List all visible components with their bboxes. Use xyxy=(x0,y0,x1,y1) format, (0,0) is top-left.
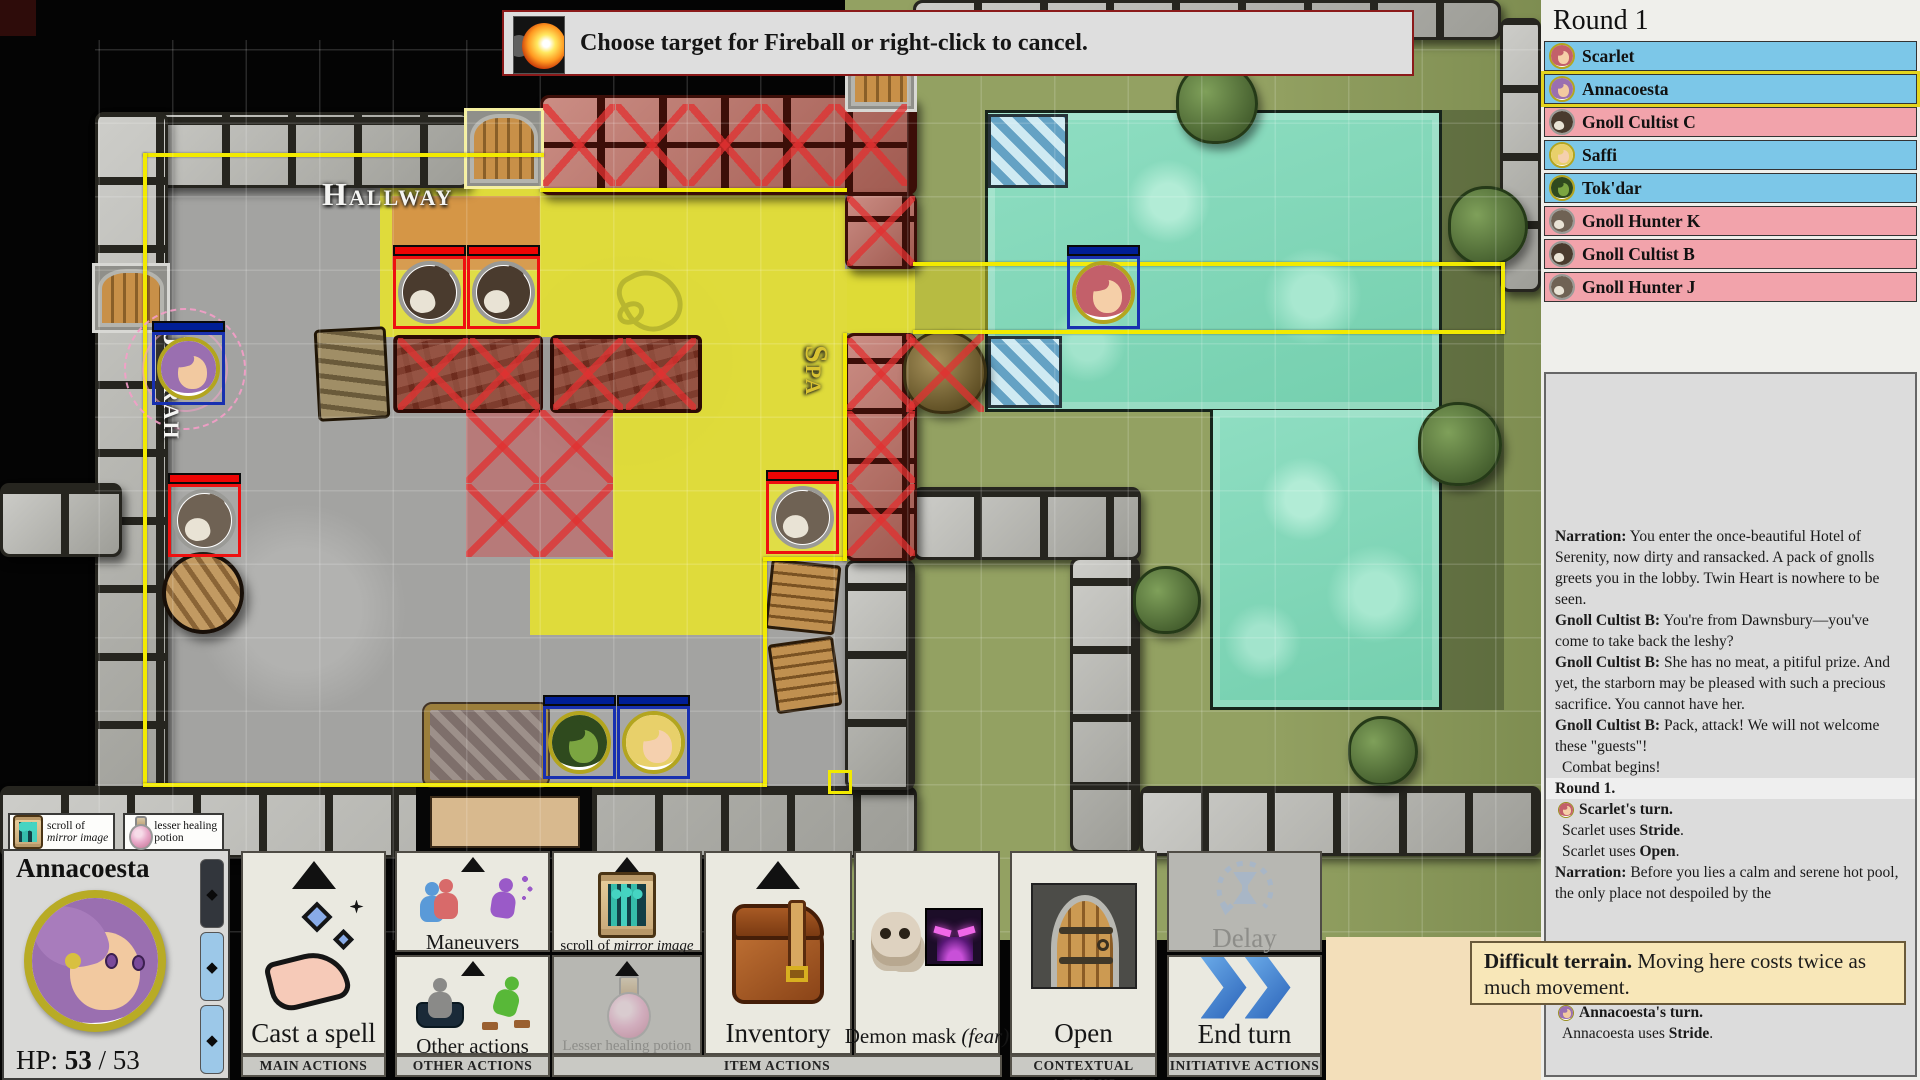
aoe-outline xyxy=(913,262,1505,266)
delay-button[interactable]: Delay xyxy=(1167,851,1322,952)
cast-a-spell-button[interactable]: Cast a spell xyxy=(241,851,386,1055)
spa-pool-lower xyxy=(1210,410,1442,710)
action-group: Cast a spellMAIN ACTIONS xyxy=(241,851,386,1077)
hp-bar xyxy=(152,321,225,332)
arrow-up-icon xyxy=(615,961,639,976)
broken-furniture xyxy=(550,335,702,413)
initiative-name: Gnoll Hunter K xyxy=(1582,211,1700,232)
initiative-name: Annacoesta xyxy=(1582,79,1669,100)
card-label: Delay xyxy=(1212,923,1276,954)
aoe-outline xyxy=(913,330,1505,334)
fallen-door-piece xyxy=(767,636,842,715)
backpack-icon xyxy=(732,904,824,1004)
banner-text: Choose target for Fireball or right-clic… xyxy=(580,30,1088,57)
token-gnoll-hunter-right[interactable] xyxy=(766,481,839,554)
arrow-up-icon xyxy=(756,861,800,889)
inventory-button[interactable]: Inventory xyxy=(704,851,852,1055)
quickslot-line: mirror image xyxy=(47,832,108,844)
card-label: Maneuvers xyxy=(426,930,519,955)
card-label: Open xyxy=(1054,1018,1112,1049)
hp-bar xyxy=(168,473,241,484)
log-entry: Gnoll Cultist B: Pack, attack! We will n… xyxy=(1555,715,1906,757)
sidebar: Round 1 ScarletAnnacoestaGnoll Cultist C… xyxy=(1541,0,1920,1080)
dry-bush xyxy=(903,330,987,414)
initiative-name: Gnoll Cultist C xyxy=(1582,112,1696,133)
token-gnoll-cultist-1[interactable] xyxy=(393,256,466,329)
potion-icon xyxy=(605,976,649,1038)
hp-bar xyxy=(543,695,616,706)
log-entry: Scarlet's turn. xyxy=(1555,799,1906,820)
target-square-cursor xyxy=(828,770,852,794)
round-title: Round 1 xyxy=(1553,5,1920,37)
aoe-outline xyxy=(143,153,147,787)
token-portrait xyxy=(548,711,611,774)
card-label: End turn xyxy=(1198,1019,1292,1050)
card-label: Cast a spell xyxy=(251,1018,375,1049)
hp-bar xyxy=(617,695,690,706)
token-tokdar[interactable] xyxy=(543,706,616,779)
map-corner-tile xyxy=(0,0,36,36)
initiative-name: Tok'dar xyxy=(1582,178,1642,199)
torn-rug xyxy=(424,704,548,786)
wooden-table xyxy=(162,552,244,634)
aoe-cell-group[interactable] xyxy=(845,269,915,333)
end-turn-button[interactable]: End turn xyxy=(1167,955,1322,1056)
group-footer: INITIATIVE ACTIONS xyxy=(1167,1055,1322,1077)
initiative-row-scarlet[interactable]: Scarlet xyxy=(1544,41,1917,71)
aoe-cell-group[interactable] xyxy=(530,559,763,635)
pool-steps xyxy=(988,114,1068,188)
demon-mask-button[interactable]: Demon mask (fear) xyxy=(854,851,1000,1055)
game-window: Hallway Spa Jarrah Choose target for Fir… xyxy=(0,0,1920,1080)
quickslot-scroll[interactable]: scroll of mirror image xyxy=(8,813,115,851)
group-footer: MAIN ACTIONS xyxy=(241,1055,386,1077)
garden-wall xyxy=(1140,786,1541,856)
log-entry: Scarlet uses Open. xyxy=(1555,841,1906,862)
log-entry: Scarlet uses Stride. xyxy=(1555,820,1906,841)
wall-in-blast xyxy=(845,193,917,269)
log-entry: Gnoll Cultist B: You're from Dawnsbury—y… xyxy=(1555,610,1906,652)
aoe-outline xyxy=(843,333,847,561)
hp-bar xyxy=(1067,245,1140,256)
bush xyxy=(1418,402,1502,486)
aoe-outline xyxy=(540,188,847,192)
quickslot-line: potion xyxy=(154,832,217,844)
token-portrait xyxy=(472,261,535,324)
arrow-up-icon xyxy=(461,857,485,872)
action-group: DelayEnd turnINITIATIVE ACTIONS xyxy=(1167,851,1322,1077)
hp-bar xyxy=(766,470,839,481)
portrait-icon xyxy=(1549,43,1575,69)
initiative-row-gnoll-cultist-c[interactable]: Gnoll Cultist C xyxy=(1544,107,1917,137)
other-actions-button[interactable]: Other actions xyxy=(395,955,550,1056)
log-entry: Combat begins! xyxy=(1555,757,1906,778)
action-group: scroll of mirror imageLesser healing pot… xyxy=(552,851,1002,1077)
hand-sparkles-icon xyxy=(262,898,366,1010)
door-mat xyxy=(430,796,580,848)
token-portrait xyxy=(771,486,834,549)
initiative-name: Gnoll Cultist B xyxy=(1582,244,1695,265)
action-group: ManeuversOther actionsOTHER ACTIONS xyxy=(395,851,550,1077)
grapple-figures-icon xyxy=(412,872,534,930)
quickslot-potion[interactable]: lesser healing potion xyxy=(123,813,224,851)
door-icon xyxy=(1031,883,1137,989)
token-gnoll-cultist-2[interactable] xyxy=(467,256,540,329)
card-label: Lesser healing potion xyxy=(562,1038,691,1055)
arrow-up-icon xyxy=(292,861,336,889)
initiative-row-gnoll-cultist-b[interactable]: Gnoll Cultist B xyxy=(1544,239,1917,269)
room-label-spa: Spa xyxy=(798,345,835,397)
action-bar: Cast a spellMAIN ACTIONSManeuversOther a… xyxy=(0,851,1330,1080)
portrait-icon xyxy=(1549,208,1575,234)
card-label: Inventory xyxy=(726,1018,831,1049)
token-scarlet[interactable] xyxy=(1067,256,1140,329)
quickslot-line: lesser healing xyxy=(154,820,217,832)
card-label: Demon mask (fear) xyxy=(845,1024,1009,1049)
token-portrait xyxy=(173,489,236,552)
token-portrait xyxy=(398,261,461,324)
fireball-icon xyxy=(513,16,565,74)
initiative-name: Scarlet xyxy=(1582,46,1634,67)
quickslot-line: scroll of xyxy=(47,820,108,832)
token-saffi[interactable] xyxy=(617,706,690,779)
hp-bar xyxy=(393,245,466,256)
potion-icon xyxy=(128,816,150,848)
initiative-list: ScarletAnnacoestaGnoll Cultist CSaffiTok… xyxy=(1541,41,1920,302)
action-group: OpenCONTEXTUAL ACTIONS xyxy=(1010,851,1157,1077)
fallen-door-piece xyxy=(765,559,842,636)
blocked-cells xyxy=(466,410,613,557)
terrain-tooltip: Difficult terrain. Moving here costs twi… xyxy=(1470,941,1906,1005)
wall xyxy=(845,560,915,790)
log-entry: Annacoesta uses Stride. xyxy=(1555,1023,1906,1044)
card-label: scroll of mirror image xyxy=(560,938,693,955)
initiative-name: Saffi xyxy=(1582,145,1617,166)
initiative-name: Gnoll Hunter J xyxy=(1582,277,1695,298)
token-portrait xyxy=(157,337,220,400)
initiative-row-gnoll-hunter-j[interactable]: Gnoll Hunter J xyxy=(1544,272,1917,302)
portrait-icon xyxy=(1558,1005,1574,1021)
portrait-icon xyxy=(1549,274,1575,300)
group-footer: OTHER ACTIONS xyxy=(395,1055,550,1077)
initiative-row-annacoesta[interactable]: Annacoesta xyxy=(1544,74,1917,104)
instruction-banner: Choose target for Fireball or right-clic… xyxy=(502,10,1414,76)
misc-actions-icon xyxy=(412,976,534,1034)
wall xyxy=(0,483,122,557)
initiative-row-tok-dar[interactable]: Tok'dar xyxy=(1544,173,1917,203)
portrait-icon xyxy=(1549,76,1575,102)
demon-mask-icon xyxy=(871,906,983,972)
bush xyxy=(1133,566,1201,634)
group-footer: ITEM ACTIONS xyxy=(552,1055,1002,1077)
room-label-hallway: Hallway xyxy=(322,176,453,213)
initiative-row-gnoll-hunter-k[interactable]: Gnoll Hunter K xyxy=(1544,206,1917,236)
garden-wall xyxy=(1070,557,1140,853)
arrow-up-icon xyxy=(615,857,639,872)
hp-bar xyxy=(467,245,540,256)
aoe-outline xyxy=(763,559,767,787)
log-entry: Round 1. xyxy=(1546,778,1915,799)
token-gnoll-hunter-left[interactable] xyxy=(168,484,241,557)
open-button[interactable]: Open xyxy=(1010,851,1157,1055)
lesser-healing-potion-button[interactable]: Lesser healing potion xyxy=(552,955,702,1056)
garden-wall xyxy=(913,487,1141,560)
token-portrait xyxy=(1072,261,1135,324)
aoe-outline xyxy=(763,557,847,561)
broken-furniture xyxy=(393,335,543,413)
portrait-icon xyxy=(1549,241,1575,267)
initiative-row-saffi[interactable]: Saffi xyxy=(1544,140,1917,170)
door-north-highlighted[interactable] xyxy=(464,108,544,189)
log-entry: Annacoesta's turn. xyxy=(1555,1002,1906,1023)
token-annacoesta[interactable] xyxy=(152,332,225,405)
scroll-of-mirror-image-button[interactable]: scroll of mirror image xyxy=(552,851,702,952)
double-chevron-icon xyxy=(1201,957,1289,1019)
aoe-cell-group[interactable] xyxy=(915,265,988,332)
bush xyxy=(1348,716,1418,786)
aoe-outline xyxy=(143,783,767,787)
hourglass-icon xyxy=(1210,853,1280,923)
maneuvers-button[interactable]: Maneuvers xyxy=(395,851,550,952)
portrait-icon xyxy=(1549,109,1575,135)
portrait-icon xyxy=(1549,175,1575,201)
aoe-outline xyxy=(143,153,544,157)
log-entry: Narration: Before you lies a calm and se… xyxy=(1555,862,1906,904)
portrait-icon xyxy=(1549,142,1575,168)
portrait-icon xyxy=(1558,802,1574,818)
broken-planks xyxy=(314,326,391,422)
scroll-icon xyxy=(13,815,43,849)
scroll-icon xyxy=(598,872,656,938)
log-entry: Narration: You enter the once-beautiful … xyxy=(1555,526,1906,610)
token-portrait xyxy=(622,711,685,774)
log-entry: Gnoll Cultist B: She has no meat, a piti… xyxy=(1555,652,1906,715)
pool-steps xyxy=(988,336,1062,408)
arrow-up-icon xyxy=(461,961,485,976)
aoe-outline xyxy=(1501,262,1505,334)
tooltip-lead: Difficult terrain. xyxy=(1484,949,1632,973)
tree xyxy=(1448,186,1528,266)
group-footer: CONTEXTUAL ACTIONS xyxy=(1010,1055,1157,1077)
